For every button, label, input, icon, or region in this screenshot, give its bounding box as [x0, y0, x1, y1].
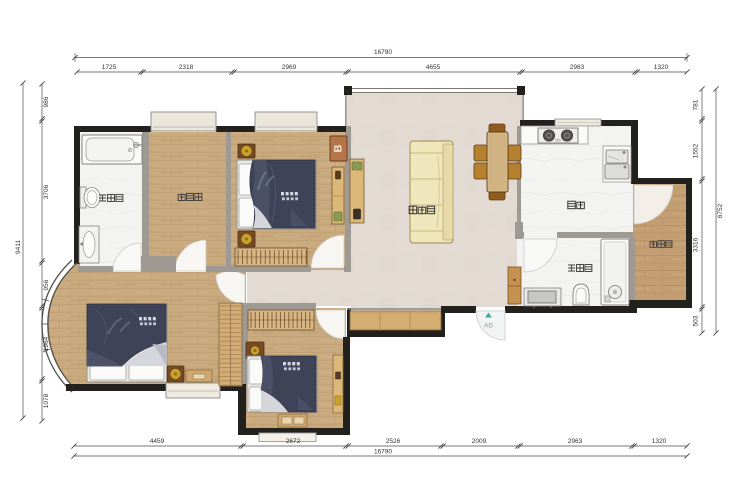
svg-text:781: 781	[693, 99, 700, 110]
svg-text:956: 956	[43, 279, 50, 290]
svg-text:1078: 1078	[43, 393, 50, 408]
svg-text:2963: 2963	[570, 64, 585, 71]
svg-text:9411: 9411	[15, 240, 22, 254]
svg-text:986: 986	[43, 96, 50, 107]
svg-text:6752: 6752	[717, 203, 724, 218]
svg-text:1964: 1964	[43, 336, 50, 351]
svg-text:2526: 2526	[386, 438, 401, 445]
svg-text:3316: 3316	[693, 237, 700, 252]
svg-text:AD: AD	[484, 323, 493, 330]
svg-text:1320: 1320	[652, 438, 667, 445]
svg-text:B: B	[332, 144, 344, 152]
svg-text:1320: 1320	[654, 64, 669, 71]
svg-text:16790: 16790	[374, 449, 392, 456]
svg-text:2009: 2009	[472, 438, 487, 445]
svg-text:503: 503	[693, 315, 700, 326]
svg-text:2963: 2963	[568, 438, 583, 445]
svg-text:2969: 2969	[282, 64, 297, 71]
svg-text:4459: 4459	[150, 438, 165, 445]
svg-text:3706: 3706	[43, 184, 50, 199]
svg-text:1552: 1552	[693, 143, 700, 158]
svg-text:2672: 2672	[286, 438, 301, 445]
svg-text:1725: 1725	[102, 64, 117, 71]
svg-text:OO: OO	[556, 138, 561, 142]
svg-text:4655: 4655	[426, 64, 441, 71]
svg-text:16790: 16790	[374, 49, 392, 56]
svg-text:2318: 2318	[179, 64, 194, 71]
